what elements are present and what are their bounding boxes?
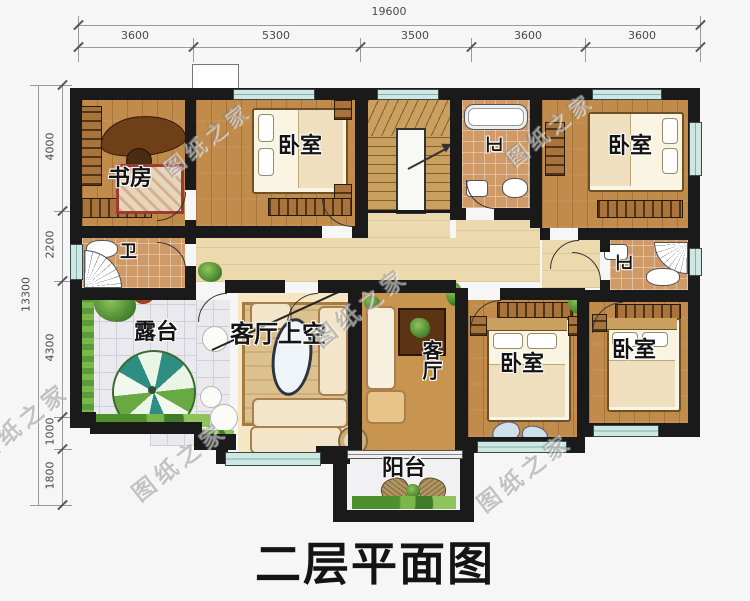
- plant: [198, 262, 222, 282]
- wall: [455, 288, 468, 453]
- study-bookcase: [80, 106, 102, 186]
- wall: [225, 280, 285, 293]
- window: [593, 425, 659, 437]
- wall: [333, 450, 347, 516]
- stair-edge: [368, 210, 450, 213]
- chaise: [366, 390, 406, 424]
- dim-line: [38, 85, 39, 505]
- dim-ext: [471, 38, 472, 62]
- wardrobe: [497, 302, 573, 318]
- bed-blanket: [609, 360, 675, 407]
- bay-window: [225, 452, 321, 466]
- dim-left-seg: 4300: [45, 326, 56, 370]
- balcony-label: 阳台: [382, 458, 426, 480]
- floor-plan-sheet: 19600 3600 5300 3500 3600 3600 13300 400…: [0, 0, 750, 601]
- study-label: 书房: [108, 168, 152, 190]
- toilet: [646, 268, 680, 286]
- sofa: [366, 306, 396, 390]
- dim-left-seg: 4000: [45, 125, 56, 169]
- terrace-label: 露台: [134, 322, 178, 344]
- bathtub: [464, 104, 528, 130]
- corridor-floor: [456, 220, 540, 282]
- window: [689, 248, 702, 276]
- bedroom-top-left-label: 卧室: [278, 136, 322, 158]
- living-label: 客厅: [420, 340, 442, 380]
- wall: [185, 238, 196, 244]
- window: [689, 122, 702, 176]
- balcony-greenery: [352, 496, 456, 509]
- wall: [600, 280, 610, 290]
- sofa: [252, 398, 348, 428]
- pillow: [258, 148, 274, 176]
- bedroom-top-right-label: 卧室: [608, 136, 652, 158]
- pillow: [662, 148, 678, 174]
- pillow: [493, 333, 523, 349]
- dim-top-seg: 5300: [246, 30, 306, 41]
- corridor-floor: [196, 238, 456, 282]
- dim-left-total: 13300: [21, 273, 32, 317]
- bath-right-label: 卫: [614, 254, 631, 271]
- bedroom-bottom-right-label: 卧室: [612, 340, 656, 362]
- stair-landing-panel: [396, 128, 426, 214]
- dim-left-seg: 1800: [45, 454, 56, 498]
- wall: [70, 226, 322, 238]
- wall: [578, 228, 700, 240]
- bath-left-label: 卫: [120, 244, 137, 261]
- dim-ext: [585, 38, 586, 62]
- wall: [450, 208, 466, 220]
- wardrobe: [597, 200, 683, 218]
- bedroom-bottom-middle-label: 卧室: [500, 354, 544, 376]
- wardrobe: [615, 304, 681, 319]
- dim-line: [78, 25, 700, 26]
- dim-top-total: 19600: [354, 6, 424, 17]
- dim-line: [62, 85, 63, 505]
- dim-ext: [30, 85, 72, 86]
- door-arc: [198, 293, 227, 322]
- window: [70, 244, 83, 280]
- window: [592, 89, 662, 100]
- window: [377, 89, 439, 100]
- pillow: [662, 118, 678, 144]
- wall: [352, 226, 368, 238]
- terrace-planter: [82, 296, 94, 422]
- wall: [577, 290, 589, 437]
- wall: [333, 510, 474, 522]
- dim-ext: [30, 505, 72, 506]
- wall: [450, 88, 462, 220]
- dim-line: [78, 47, 700, 48]
- toilet: [502, 178, 528, 198]
- plant: [410, 318, 430, 338]
- wall: [500, 288, 585, 300]
- pillow: [258, 114, 274, 142]
- sheet-title: 二层平面图: [0, 528, 750, 594]
- dim-top-seg: 3600: [498, 30, 558, 41]
- corridor-floor: [368, 212, 450, 238]
- pillow: [527, 333, 557, 349]
- wall: [185, 266, 196, 288]
- window: [233, 89, 315, 100]
- wall: [494, 208, 542, 220]
- dim-ext: [193, 38, 194, 62]
- wall: [585, 290, 700, 302]
- wall: [70, 288, 196, 300]
- wall: [600, 240, 610, 252]
- nightstand: [334, 100, 352, 120]
- wall: [355, 88, 368, 238]
- dim-top-seg: 3600: [105, 30, 165, 41]
- parasol-pole: [148, 386, 156, 394]
- wall: [460, 450, 474, 516]
- dim-top-seg: 3500: [385, 30, 445, 41]
- wall: [540, 228, 550, 240]
- dim-ext: [360, 38, 361, 62]
- dim-left-seg: 2200: [45, 223, 56, 267]
- bath-top-label: 卫: [484, 136, 501, 153]
- dim-top-seg: 3600: [612, 30, 672, 41]
